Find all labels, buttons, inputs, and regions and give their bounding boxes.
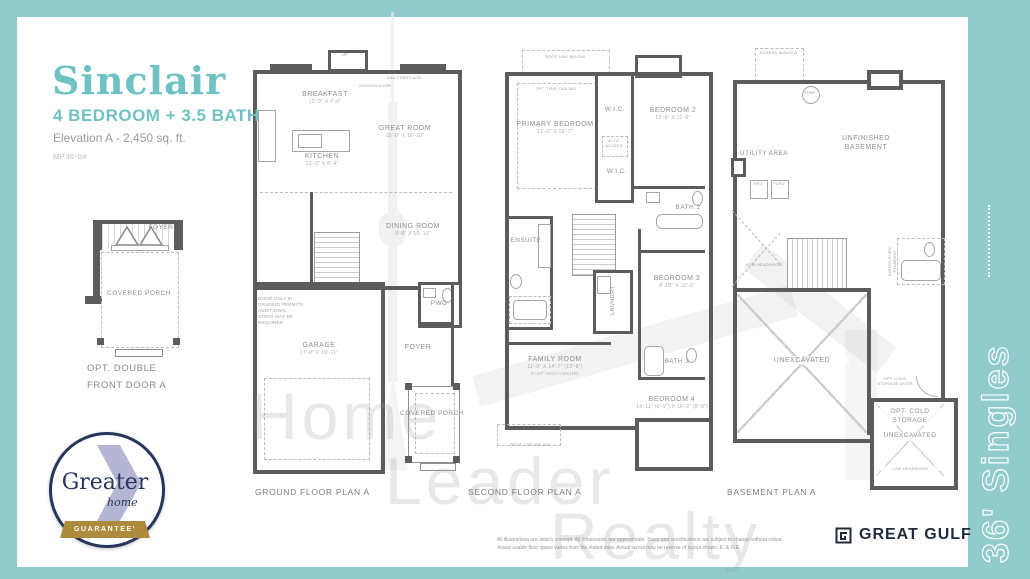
wall-segment: [270, 64, 312, 70]
wall-segment: [638, 342, 641, 380]
decor: 12'-0" X 7'-0": [283, 99, 367, 106]
greater-home-guarantee-badge: Greater home GUARANTEE': [47, 430, 167, 552]
fixture: [423, 288, 436, 298]
room-unexcavated-2: UNEXCAVATED: [874, 432, 946, 441]
room-utility-area: UTILITY AREA: [740, 150, 788, 159]
room-bath3: BATH 3: [654, 358, 700, 367]
plan-label: ROOF LINE BELOW: [501, 442, 559, 447]
decor: 9'-10" HIGH CEILING: [510, 371, 600, 377]
wall-segment: [505, 342, 611, 345]
fixture: [111, 245, 169, 251]
option-plan-double-front-door: FOYER COVERED PORCH OPT. DOUBLE FRONT DO…: [85, 220, 195, 390]
room-pwd: PWD: [422, 300, 456, 309]
wall-segment: [641, 250, 705, 253]
room-great-room: GREAT ROOM 15'-0" X 16'-10": [360, 124, 450, 140]
side-band-label: 36' Singles: [975, 243, 1017, 563]
decor: BEDROOM 4: [649, 396, 696, 403]
decor: 9'-8" X 10'-10": [368, 231, 458, 238]
model-code: MP36-04: [53, 152, 87, 161]
stairs: [314, 232, 360, 284]
wall-segment: [595, 200, 634, 203]
porch-post: [453, 383, 460, 390]
decor: DINING ROOM: [386, 223, 440, 230]
decor: BREAKFAST: [302, 91, 348, 98]
decor: [116, 227, 138, 245]
wall-segment: [400, 64, 446, 70]
great-gulf-monogram-icon: [835, 527, 852, 544]
decor: [841, 533, 847, 539]
badge-guarantee-banner: GUARANTEE': [60, 521, 150, 538]
fixture: [298, 134, 322, 148]
plan-label: ATTIC ACCESS: [603, 139, 625, 149]
room-wic-2: W.I.C.: [600, 168, 634, 177]
second-floor-plan: ROOF LINE BELOW OPT. TRAY CEILING PRIMAR…: [496, 46, 722, 476]
basement-plan: EGRESS WINDOW SUMP UNFINISHED BASEMENT U…: [728, 48, 970, 484]
decor: [115, 349, 163, 357]
decor: KITCHEN: [305, 153, 339, 160]
badge-home-text: home: [107, 496, 138, 509]
room-unexcavated: UNEXCAVATED: [755, 356, 849, 365]
fixture: [538, 224, 551, 268]
fixture: [513, 300, 547, 320]
second-floor-caption: SECOND FLOOR PLAN A: [468, 487, 581, 497]
room-bedroom4: BEDROOM 4 14'-11" (9'-9") X 16'-2" (8'-0…: [634, 395, 710, 411]
basement-caption: BASEMENT PLAN A: [727, 487, 816, 497]
plan-label: ROOF LINE BELOW: [526, 54, 604, 59]
wall-segment: [85, 296, 102, 304]
decor: GARAGE: [303, 342, 336, 349]
great-gulf-logo: GREAT GULF: [835, 526, 972, 544]
room-covered-porch: COVERED PORCH: [398, 410, 466, 419]
badge-greater-text: Greater: [57, 470, 153, 495]
wall-segment: [505, 327, 553, 330]
frame-left: [0, 17, 17, 567]
room-dining: DINING ROOM 9'-8" X 10'-10": [368, 222, 458, 238]
wall-segment: [638, 377, 705, 380]
plan-label: SUMP: [802, 91, 818, 96]
room-primary-bedroom: PRIMARY BEDROOM 12'-0" X 15'-7": [510, 120, 600, 136]
decor: 8'-10" X 12'-0": [642, 283, 712, 290]
decor: BEDROOM 3: [654, 275, 701, 282]
decor: 17'-0" X 19'-11": [265, 350, 373, 357]
room-laundry: LAUNDRY: [610, 278, 617, 322]
dashed-line: [415, 393, 455, 454]
page-title: Sinclair: [52, 58, 226, 103]
decor: PRIMARY BEDROOM: [516, 121, 593, 128]
plan-label: FURN: [771, 182, 787, 187]
porch-post: [173, 338, 180, 345]
room-bedroom3: BEDROOM 3 8'-10" X 12'-0": [642, 274, 712, 290]
plan-label: EGRESS WINDOW: [756, 50, 801, 55]
option-foyer-label: FOYER: [141, 224, 181, 233]
plan-label: GAS FIREPLACE: [378, 75, 430, 80]
room-wic-1: W.I.C.: [598, 106, 632, 115]
disclaimer: All illustrations are artist's concept. …: [497, 536, 797, 552]
decor: 11'-9" X 14'-7" (13'-8"): [510, 364, 600, 371]
frame-bottom: [0, 567, 1030, 579]
fixture: [510, 274, 522, 289]
wall-segment: [634, 186, 705, 189]
plan-label: GARDEN DOOR: [358, 83, 392, 88]
great-gulf-wordmark: GREAT GULF: [859, 526, 972, 544]
plan-label: LOW HEADROOM: [878, 466, 942, 471]
wall-segment: [635, 418, 713, 471]
fixture: [656, 214, 703, 229]
wall-segment: [731, 158, 746, 177]
option-plan-caption: OPT. DOUBLE FRONT DOOR A: [87, 360, 187, 394]
wall-segment: [505, 216, 553, 219]
decor: GREAT ROOM: [379, 125, 431, 132]
ground-floor-plan: UP GARDEN DOOR GAS FIREPLACE BREAKFAST 1…: [250, 50, 472, 480]
room-breakfast: BREAKFAST 12'-0" X 7'-0": [283, 90, 367, 106]
room-family: FAMILY ROOM 11'-9" X 14'-7" (13'-8") 9'-…: [510, 355, 600, 378]
wall-segment: [451, 282, 454, 386]
decor: [837, 528, 851, 542]
decor: FAMILY ROOM: [528, 356, 581, 363]
fixture: [924, 242, 935, 257]
stairs: [787, 238, 847, 290]
flyer-page: { "header": { "title": "Sinclair", "subt…: [0, 0, 1030, 579]
ground-floor-caption: GROUND FLOOR PLAN A: [255, 487, 370, 497]
garage-door-note: DOOR ONLY IF GRADING PERMITS ADDITIONAL …: [258, 296, 304, 326]
plan-label: OPT. TRAY CEILING: [523, 86, 589, 91]
room-unfinished-basement: UNFINISHED BASEMENT: [820, 134, 912, 153]
wall-segment: [310, 192, 313, 282]
wall-segment: [93, 250, 100, 300]
room-kitchen: KITCHEN 12'-0" X 8'-4": [280, 152, 364, 168]
elevation-label: Elevation A - 2,450 sq. ft.: [53, 131, 186, 145]
stairs: [572, 214, 616, 276]
room-bedroom2: BEDROOM 2 10'-6" X 11'-6": [636, 106, 710, 122]
decor: 15'-0" X 16'-10": [360, 133, 450, 140]
fixture: [646, 192, 660, 203]
dashed-line: [101, 252, 179, 348]
plan-label: UP: [332, 52, 358, 58]
porch-post: [97, 338, 104, 345]
decor: BEDROOM 2: [650, 107, 697, 114]
option-porch-label: COVERED PORCH: [105, 290, 173, 299]
wall-segment: [93, 220, 102, 250]
decor: 10'-6" X 11'-6": [636, 115, 710, 122]
dashed-line: [264, 378, 370, 460]
fixture: [258, 110, 276, 162]
fixture: [597, 276, 611, 294]
room-garage: GARAGE 17'-0" X 19'-11": [265, 341, 373, 357]
decor: 12'-0" X 15'-7": [510, 129, 600, 136]
plan-label: ROUGH-IN 3PC PLUMBING: [888, 238, 898, 284]
frame-top: [0, 0, 1030, 17]
wall-segment: [595, 72, 598, 203]
porch-post: [405, 456, 412, 463]
wall-segment: [631, 72, 634, 203]
page-subtitle: 4 BEDROOM + 3.5 BATH: [53, 106, 260, 126]
plan-label: OPT. COLD STORAGE DOOR: [874, 376, 916, 387]
decor: [420, 463, 456, 471]
wall-segment: [418, 322, 454, 325]
disclaimer-line-1: All illustrations are artist's concept. …: [497, 536, 797, 544]
fixture: [901, 260, 941, 281]
porch-post: [453, 456, 460, 463]
room-foyer: FOYER: [390, 343, 446, 352]
wall-segment: [733, 288, 871, 292]
dashed-line: [260, 192, 452, 193]
room-cold-storage: OPT. COLD STORAGE: [874, 408, 946, 426]
plan-label: HRV: [750, 182, 766, 187]
decor: 14'-11" (9'-9") X 16'-2" (8'-0"): [634, 404, 710, 411]
room-bath2: BATH 2: [668, 204, 708, 213]
decor: 12'-0" X 8'-4": [280, 161, 364, 168]
wall-segment: [867, 70, 903, 90]
disclaimer-line-2: Actual usable floor space varies from th…: [497, 544, 797, 552]
porch-post: [405, 383, 412, 390]
plan-label: LOW HEADROOM: [744, 262, 784, 267]
room-ensuite: ENSUITE: [504, 237, 548, 246]
wall-segment: [638, 229, 641, 345]
